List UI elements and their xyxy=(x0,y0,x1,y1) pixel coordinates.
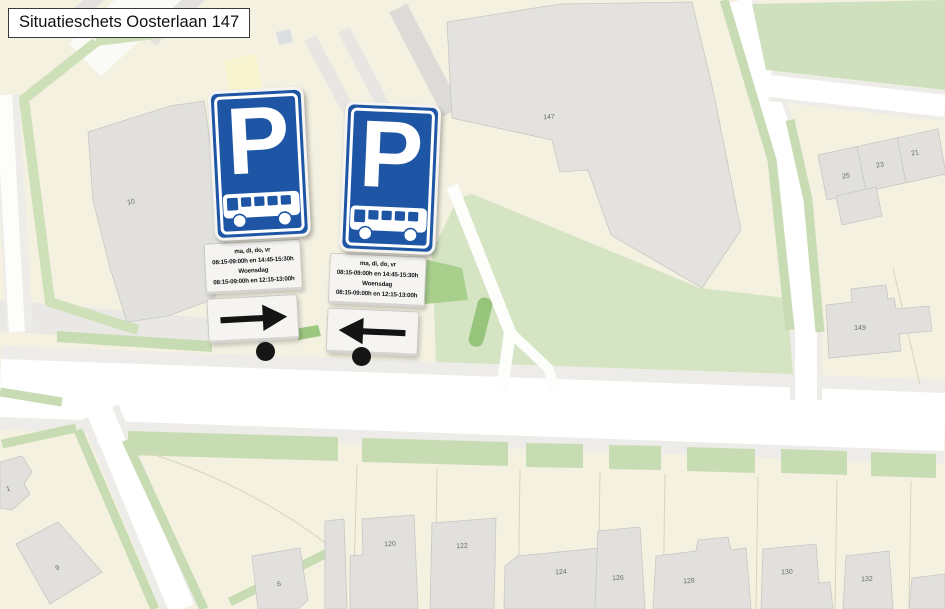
house-6 xyxy=(252,548,308,609)
situation-sketch: 10 147 25 23 21 149 120 122 124 126 128 … xyxy=(0,0,945,609)
house-number-120: 120 xyxy=(384,541,396,549)
arrow-right-icon xyxy=(213,300,293,336)
house-number-130: 130 xyxy=(781,569,793,577)
arrow-left-icon xyxy=(333,314,412,349)
house-number-147: 147 xyxy=(543,114,555,121)
parking-sign-board: P xyxy=(339,101,441,255)
parking-sign-board: P xyxy=(207,86,311,241)
parking-p-symbol: P xyxy=(211,92,306,192)
bus-icon xyxy=(222,188,302,232)
house-number-132: 132 xyxy=(861,576,873,584)
house-number-25: 25 xyxy=(842,172,851,180)
house-number-23: 23 xyxy=(876,161,885,169)
house-number-128: 128 xyxy=(683,578,695,586)
house-number-21: 21 xyxy=(911,149,920,157)
schedule-plate: ma, di, do, vr 08:15-09:00h en 14:45-15:… xyxy=(328,253,427,308)
title-box: Situatieschets Oosterlaan 147 xyxy=(8,8,250,38)
house-124 xyxy=(504,548,603,609)
house-partial-right xyxy=(909,574,945,609)
house-122 xyxy=(430,518,496,609)
house-number-126: 126 xyxy=(612,575,624,583)
pole-location-dot-east xyxy=(256,342,275,361)
parking-sign-east: P ma, di, do, vr 08:15-09:00h en 14:45-1… xyxy=(195,86,318,344)
page-title: Situatieschets Oosterlaan 147 xyxy=(19,13,239,31)
house-partial-left xyxy=(325,519,347,609)
house-126 xyxy=(595,527,645,609)
bus-icon xyxy=(348,202,428,245)
arrow-plate xyxy=(326,308,420,357)
parking-p-symbol: P xyxy=(344,106,438,205)
house-number-149: 149 xyxy=(854,325,866,332)
base-map: 10 147 25 23 21 149 120 122 124 126 128 … xyxy=(0,0,945,609)
house-number-124: 124 xyxy=(555,569,567,577)
parking-sign-west: P ma, di, do, vr 08:15-09:00h en 14:45-1… xyxy=(326,101,447,358)
pole-location-dot-west xyxy=(352,347,371,366)
schedule-plate: ma, di, do, vr 08:15-09:00h en 14:45-15:… xyxy=(203,239,303,295)
arrow-plate xyxy=(206,294,299,344)
house-number-122: 122 xyxy=(456,543,468,551)
